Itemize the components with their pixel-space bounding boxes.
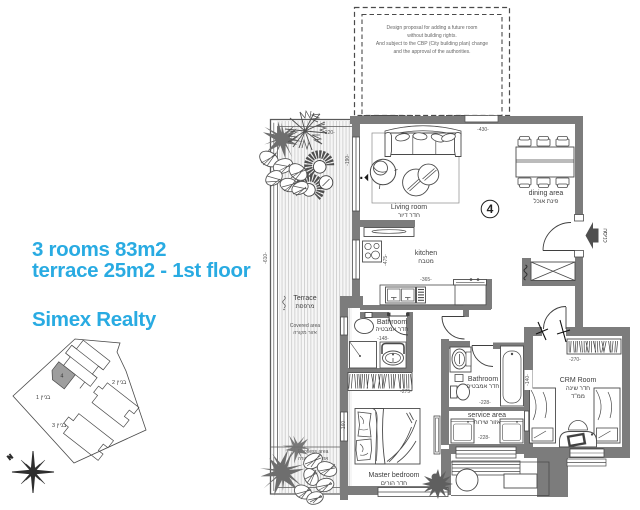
svg-text:without building rights.: without building rights. — [407, 33, 456, 39]
svg-text:-140-: -140- — [525, 374, 531, 386]
svg-text:CRM Room: CRM Room — [560, 377, 597, 384]
svg-text:מרפסת: מרפסת — [296, 304, 315, 310]
svg-text:בניין 2: בניין 2 — [112, 380, 127, 386]
svg-text:אזור שירות: אזור שירות — [474, 420, 501, 426]
svg-text:service area: service area — [468, 412, 506, 419]
svg-text:-430-: -430- — [477, 127, 489, 133]
svg-text:חדר אמבטיה: חדר אמבטיה — [467, 384, 500, 390]
svg-text:-148-: -148- — [377, 336, 389, 342]
svg-text:Simex Realty: Simex Realty — [32, 308, 157, 331]
svg-text:3 rooms 83m2: 3 rooms 83m2 — [32, 238, 166, 261]
svg-text:Bathroom: Bathroom — [468, 376, 499, 383]
svg-text:4: 4 — [60, 374, 63, 380]
svg-text:kitchen: kitchen — [415, 250, 437, 257]
svg-text:-270-: -270- — [569, 357, 581, 363]
svg-text:ממ"ד: ממ"ד — [571, 394, 585, 400]
svg-text:-228-: -228- — [478, 435, 490, 441]
svg-text:כניסה: כניסה — [602, 228, 608, 243]
svg-text:-190-: -190- — [345, 154, 351, 166]
svg-text:Living room: Living room — [391, 204, 427, 211]
svg-text:חדר הורים: חדר הורים — [381, 481, 407, 487]
svg-text:חדר דיור: חדר דיור — [398, 213, 420, 219]
svg-text:בניין 3: בניין 3 — [52, 423, 67, 429]
svg-text:-160-: -160- — [341, 419, 347, 431]
svg-text:מטבח: מטבח — [418, 259, 434, 265]
svg-text:חדר אמבטיה: חדר אמבטיה — [376, 327, 409, 333]
svg-text:and the approval of the author: and the approval of the authorities. — [394, 49, 471, 55]
svg-text:-365-: -365- — [420, 277, 432, 283]
svg-text:-610-: -610- — [263, 252, 269, 264]
svg-text:Terrace: Terrace — [293, 295, 316, 302]
svg-text:Design proposal for adding a f: Design proposal for adding a future room — [387, 25, 478, 31]
svg-text:פינת אוכל: פינת אוכל — [534, 197, 559, 205]
svg-text:אזור מקורה: אזור מקורה — [293, 330, 317, 336]
svg-text:terrace 25m2 - 1st floor: terrace 25m2 - 1st floor — [32, 259, 251, 282]
svg-text:And subject to the CBP (City b: And subject to the CBP (City building pl… — [376, 41, 488, 47]
svg-text:Bathroom: Bathroom — [377, 319, 408, 326]
svg-text:-475-: -475- — [383, 254, 389, 266]
svg-text:Covered area: Covered area — [290, 323, 321, 329]
svg-text:dining area: dining area — [529, 190, 564, 197]
svg-text:Master bedroom: Master bedroom — [369, 472, 420, 479]
svg-text:חדר שינה: חדר שינה — [566, 386, 590, 392]
svg-text:-275-: -275- — [400, 389, 412, 395]
svg-text:בניין 1: בניין 1 — [36, 395, 51, 401]
svg-text:-228-: -228- — [479, 400, 491, 406]
svg-text:4: 4 — [487, 202, 494, 216]
